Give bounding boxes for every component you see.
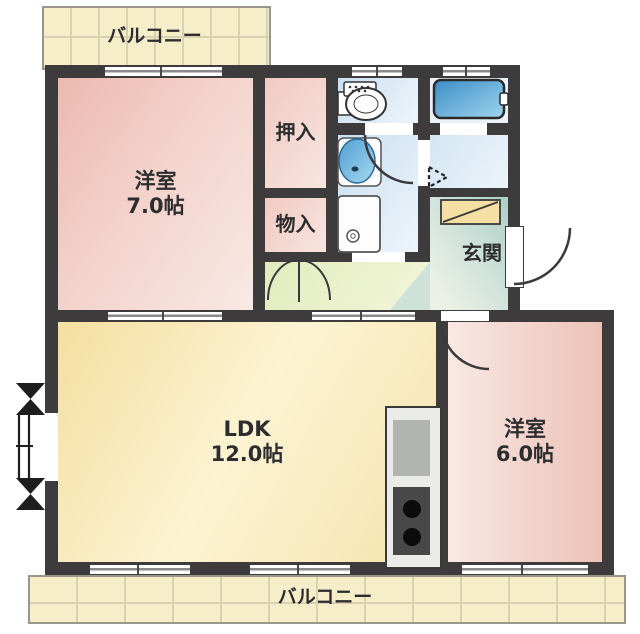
window-western6-bottom	[462, 565, 588, 574]
hallway	[265, 262, 430, 310]
room-ldk	[58, 322, 436, 562]
balcony-top	[42, 6, 271, 70]
room-washroom	[338, 135, 418, 252]
wall-toilet-bath-bottom	[326, 123, 520, 135]
sliding-door-hallway-ldk	[312, 312, 415, 320]
room-toilet	[338, 78, 418, 123]
western6-door-panel	[441, 311, 489, 321]
bath-door-opening	[440, 123, 487, 135]
wall-genkan-top	[418, 188, 520, 197]
room-western-6	[448, 322, 602, 562]
hall-below-bath	[430, 135, 508, 188]
floor-plan: バルコニー 洋室 7.0帖 押入 物入 玄関 LDK 12.0帖 洋室 6.0帖…	[0, 0, 640, 634]
kitchen-sink	[393, 420, 430, 476]
window-ldk-bottom-2	[250, 565, 350, 574]
washroom-side-opening	[418, 140, 430, 186]
entrance-door-panel	[505, 226, 524, 288]
room-western-7	[58, 78, 253, 310]
washroom-door-opening	[352, 252, 405, 262]
room-bath	[430, 78, 508, 123]
wall-closet-right	[326, 65, 338, 262]
sliding-door-western7-ldk	[108, 312, 222, 320]
balcony-bottom	[28, 575, 626, 624]
room-genkan	[430, 197, 508, 310]
kitchen-stove	[393, 487, 430, 555]
wall-right-lower	[602, 310, 614, 575]
window-western7-top	[105, 67, 222, 76]
stove-burner-icon	[403, 528, 421, 546]
stove-burner-icon	[403, 500, 421, 518]
window-bath-top	[443, 67, 490, 76]
toilet-door-panel	[365, 123, 413, 135]
window-toilet-top	[352, 67, 402, 76]
bay-window-icon	[16, 383, 45, 510]
closet-monoire	[265, 198, 326, 252]
wall-oshiire-monoire	[253, 188, 338, 198]
closet-oshiire	[265, 78, 326, 188]
bay-window-opening	[45, 413, 58, 481]
window-ldk-bottom-1	[90, 565, 190, 574]
